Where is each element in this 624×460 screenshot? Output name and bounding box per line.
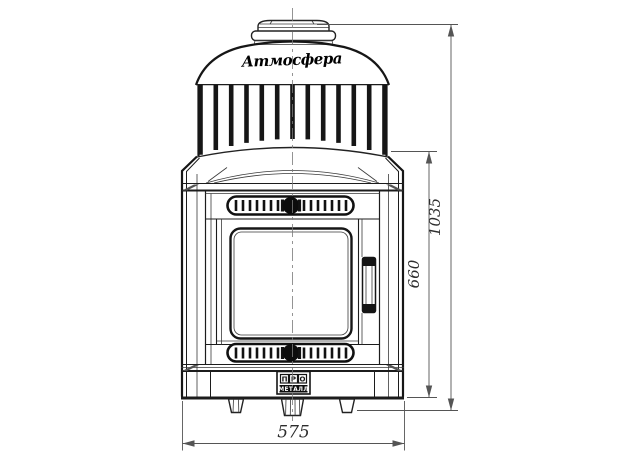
air-vent-grille-bottom — [228, 344, 354, 362]
door-glass — [231, 229, 352, 339]
vent-knob-top[interactable] — [283, 197, 300, 214]
dim-width-label: 575 — [277, 423, 309, 443]
brand-script-logo: Атмосфера — [240, 49, 342, 71]
vent-knob-bottom[interactable] — [283, 344, 300, 361]
stove-door[interactable] — [217, 219, 376, 345]
badge-bottom-label: МЕТАЛЛ — [278, 387, 308, 393]
dim-body-height-label: 660 — [405, 259, 423, 288]
maker-badge: П Р О МЕТАЛЛ — [277, 372, 310, 395]
badge-letter-1: П — [282, 376, 288, 384]
dim-overall-height-label: 1035 — [426, 198, 444, 236]
badge-letter-2: Р — [291, 376, 296, 384]
leg-right — [340, 399, 355, 413]
legs — [229, 399, 355, 416]
dim-width-575: 575 — [183, 401, 405, 451]
air-vent-grille-top — [228, 197, 354, 215]
door-handle[interactable] — [363, 258, 376, 313]
stove-technical-drawing: Атмосфера — [0, 0, 624, 460]
badge-letter-3: О — [300, 376, 306, 384]
leg-left — [229, 399, 244, 413]
drawing-canvas: Атмосфера — [0, 0, 624, 460]
